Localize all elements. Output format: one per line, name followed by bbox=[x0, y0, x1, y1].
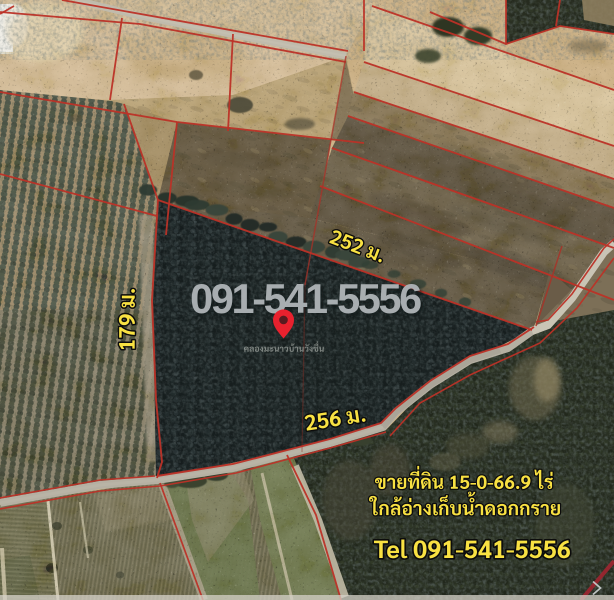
svg-text:091-541-5556: 091-541-5556 bbox=[190, 275, 421, 322]
